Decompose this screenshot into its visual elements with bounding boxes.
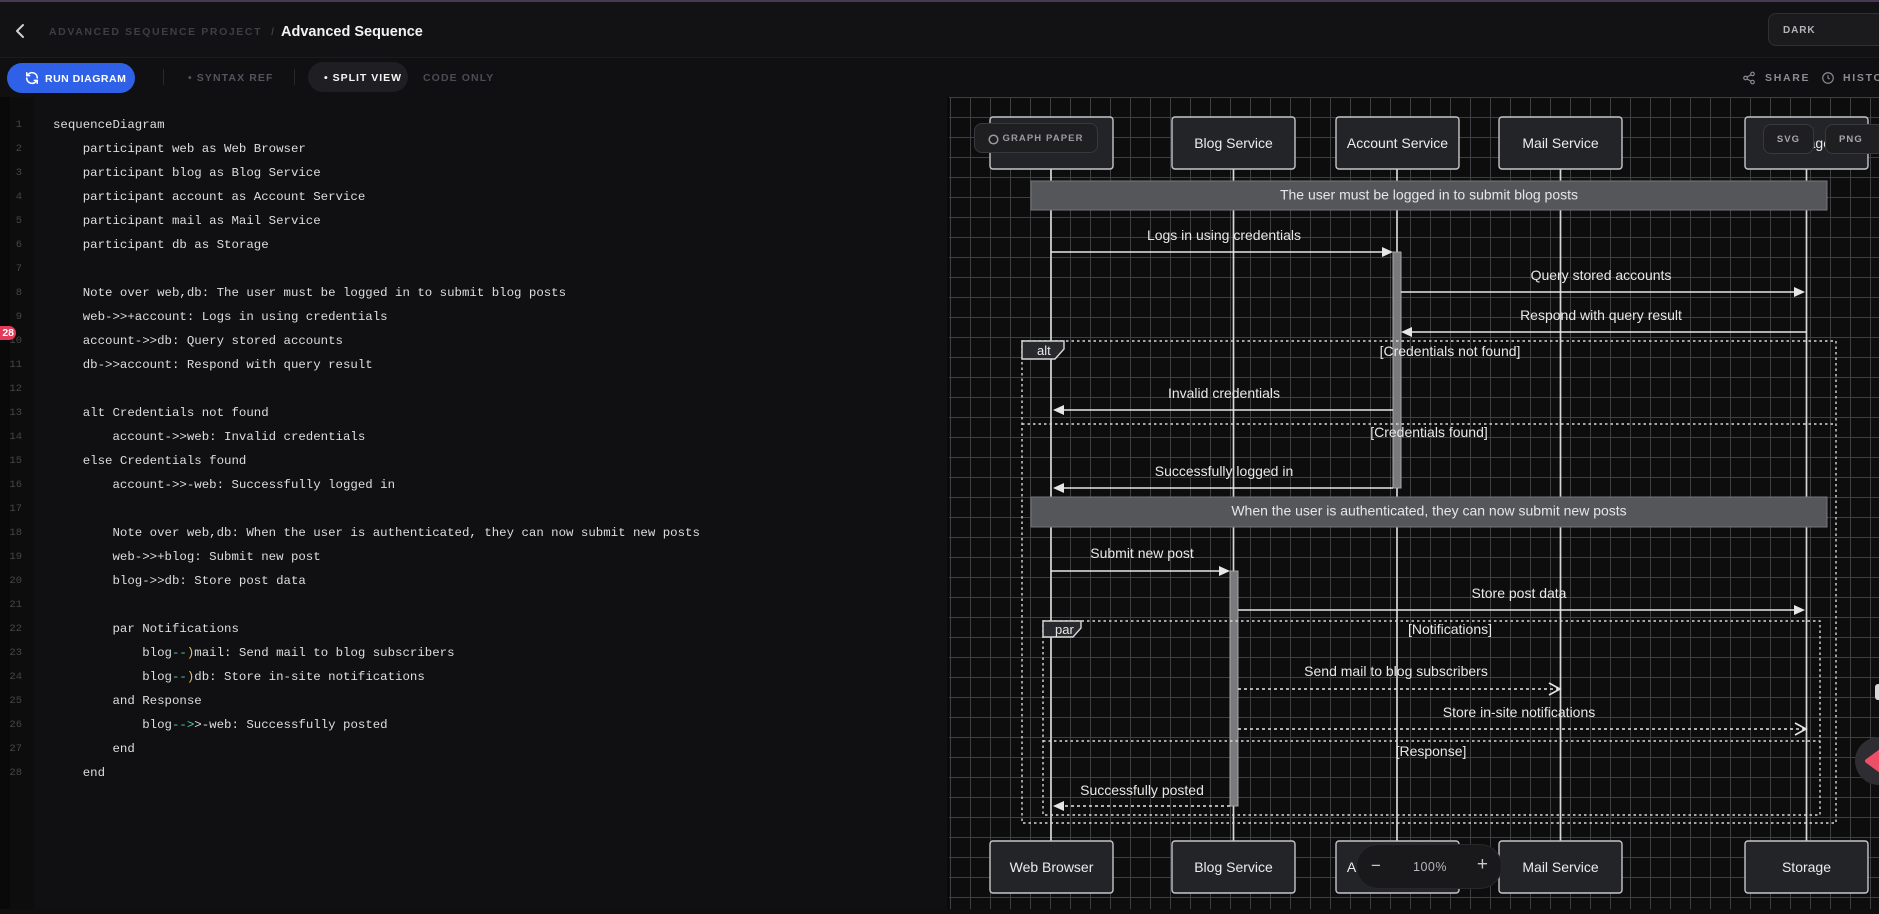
svg-text:Blog Service: Blog Service [1194, 135, 1273, 151]
svg-text:Successfully posted: Successfully posted [1080, 782, 1204, 798]
svg-text:[Response]: [Response] [1396, 743, 1467, 759]
svg-text:Respond with query result: Respond with query result [1520, 307, 1682, 323]
svg-text:Invalid credentials: Invalid credentials [1168, 385, 1280, 401]
svg-text:When the user is authenticated: When the user is authenticated, they can… [1231, 503, 1626, 519]
svg-text:Submit new post: Submit new post [1090, 545, 1194, 561]
svg-text:Query stored accounts: Query stored accounts [1531, 267, 1672, 283]
svg-text:Store post data: Store post data [1472, 585, 1567, 601]
svg-text:[Notifications]: [Notifications] [1408, 621, 1492, 637]
svg-text:Successfully logged in: Successfully logged in [1155, 463, 1294, 479]
svg-text:The user must be logged in to: The user must be logged in to submit blo… [1280, 187, 1578, 203]
svg-text:Send mail to blog subscribers: Send mail to blog subscribers [1304, 663, 1488, 679]
svg-text:alt: alt [1037, 343, 1051, 358]
svg-text:Store in-site notifications: Store in-site notifications [1443, 704, 1596, 720]
svg-text:[Credentials not found]: [Credentials not found] [1380, 343, 1521, 359]
svg-text:Logs in using credentials: Logs in using credentials [1147, 227, 1301, 243]
svg-text:[Credentials found]: [Credentials found] [1370, 424, 1488, 440]
svg-text:Blog Service: Blog Service [1194, 859, 1273, 875]
svg-text:Account Service: Account Service [1347, 135, 1448, 151]
svg-text:Storage: Storage [1782, 859, 1831, 875]
svg-text:par: par [1055, 622, 1074, 637]
svg-text:Mail Service: Mail Service [1522, 859, 1598, 875]
svg-text:Web Browser: Web Browser [1010, 859, 1094, 875]
svg-text:Mail Service: Mail Service [1522, 135, 1598, 151]
